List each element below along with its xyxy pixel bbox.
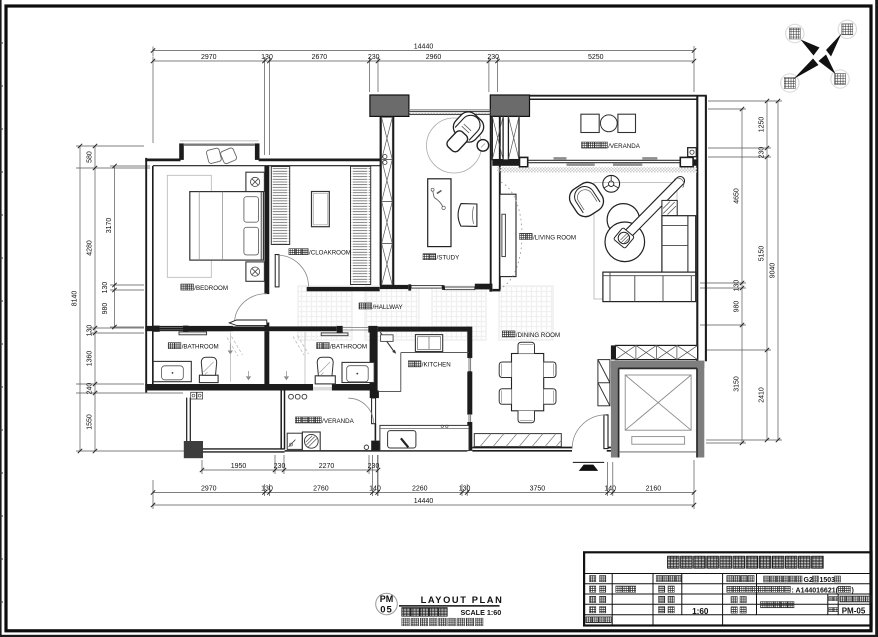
svg-text:140: 140 — [369, 485, 381, 492]
svg-text:230: 230 — [368, 54, 380, 61]
svg-text:1250: 1250 — [759, 117, 766, 133]
svg-text:9040: 9040 — [770, 263, 777, 279]
svg-text:/STUDY: /STUDY — [437, 255, 460, 262]
svg-text:230: 230 — [487, 54, 499, 61]
svg-text:230: 230 — [368, 463, 380, 470]
svg-text:2410: 2410 — [759, 387, 766, 403]
svg-text:980: 980 — [102, 303, 109, 315]
svg-text:/BATHROOM: /BATHROOM — [330, 344, 367, 351]
svg-text:1:60: 1:60 — [692, 607, 709, 616]
svg-text:3170: 3170 — [106, 218, 113, 234]
svg-text:130: 130 — [261, 54, 273, 61]
svg-text:): ) — [852, 587, 854, 594]
svg-text:3750: 3750 — [530, 485, 546, 492]
svg-text:130: 130 — [261, 485, 273, 492]
svg-text:05: 05 — [380, 605, 393, 616]
svg-text:230: 230 — [759, 147, 766, 159]
svg-text:1950: 1950 — [231, 463, 247, 470]
svg-text:4280: 4280 — [87, 240, 94, 256]
svg-text:130: 130 — [734, 280, 741, 292]
svg-text:2160: 2160 — [646, 485, 662, 492]
svg-text:/CLOAKROOM: /CLOAKROOM — [309, 250, 351, 257]
svg-text:130: 130 — [87, 325, 94, 337]
svg-text:: A144016621(: : A144016621( — [792, 587, 839, 594]
svg-text:G2: G2 — [804, 577, 813, 584]
svg-text:2270: 2270 — [319, 463, 335, 470]
svg-text:140: 140 — [604, 485, 616, 492]
svg-text:8140: 8140 — [72, 291, 79, 307]
svg-text:SCALE 1:60: SCALE 1:60 — [461, 608, 502, 617]
svg-text:980: 980 — [734, 301, 741, 313]
svg-text:3150: 3150 — [734, 376, 741, 392]
svg-text:4650: 4650 — [734, 188, 741, 204]
svg-text:5250: 5250 — [588, 54, 604, 61]
svg-text:/BATHROOM: /BATHROOM — [182, 344, 219, 351]
svg-text:2260: 2260 — [412, 485, 428, 492]
svg-text:2970: 2970 — [201, 485, 217, 492]
svg-text:/VERANDA: /VERANDA — [608, 143, 641, 150]
svg-text:/KITCHEN: /KITCHEN — [422, 362, 451, 369]
svg-text:5150: 5150 — [759, 246, 766, 262]
svg-text:1360: 1360 — [87, 351, 94, 367]
svg-text:/LIVING ROOM: /LIVING ROOM — [533, 234, 576, 241]
svg-text:2970: 2970 — [201, 54, 217, 61]
svg-text:/VERANDA: /VERANDA — [322, 418, 355, 425]
svg-text:580: 580 — [87, 151, 94, 163]
svg-text:1503: 1503 — [820, 577, 836, 584]
svg-text:2760: 2760 — [313, 485, 329, 492]
svg-text:LAYOUT PLAN: LAYOUT PLAN — [421, 595, 504, 605]
svg-text:PM: PM — [380, 594, 394, 604]
svg-text:130: 130 — [102, 282, 109, 294]
svg-text:PM-05: PM-05 — [842, 607, 866, 616]
svg-text:230: 230 — [274, 463, 286, 470]
svg-text:/DINING ROOM: /DINING ROOM — [516, 332, 560, 339]
svg-text:/BEDROOM: /BEDROOM — [194, 285, 228, 292]
svg-text:2960: 2960 — [426, 54, 442, 61]
svg-text:240: 240 — [87, 383, 94, 395]
svg-text:1550: 1550 — [87, 414, 94, 430]
svg-text:/HALLWAY: /HALLWAY — [373, 304, 403, 311]
svg-text:130: 130 — [459, 485, 471, 492]
svg-text:2670: 2670 — [312, 54, 328, 61]
svg-text:14440: 14440 — [414, 43, 434, 50]
svg-text:14440: 14440 — [414, 498, 434, 505]
